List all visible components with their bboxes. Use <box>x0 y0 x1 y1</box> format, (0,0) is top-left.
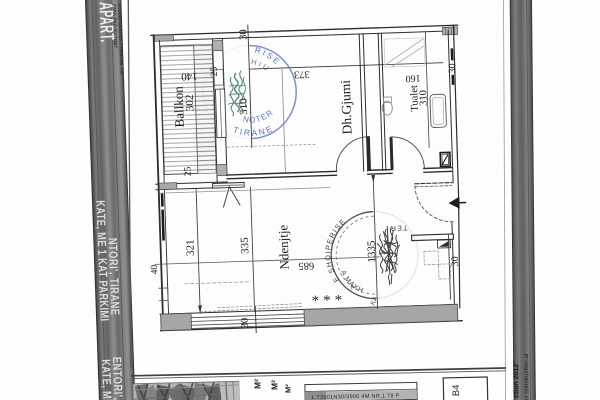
svg-text:30: 30 <box>450 256 461 266</box>
svg-text:***: *** <box>311 293 346 310</box>
svg-text:1.T3901N30/3900 4M NR.1:78 P: 1.T3901N30/3900 4M NR.1:78 P <box>311 393 400 400</box>
svg-text:40: 40 <box>150 264 160 274</box>
svg-text:310: 310 <box>418 90 430 106</box>
svg-text:M²: M² <box>284 384 293 393</box>
svg-text:25: 25 <box>183 166 193 176</box>
svg-text:ov construction.al: ov construction.al <box>523 354 530 400</box>
svg-text:373: 373 <box>294 68 310 80</box>
svg-text:140: 140 <box>180 70 197 83</box>
svg-text:685: 685 <box>298 260 314 272</box>
svg-text:335: 335 <box>239 237 252 254</box>
svg-text:NTORI', TIRANE: NTORI', TIRANE <box>105 238 121 316</box>
svg-text:30: 30 <box>447 63 458 73</box>
svg-text:ENTORI', TIR: ENTORI', TIR <box>110 357 126 400</box>
svg-text:30: 30 <box>238 29 249 40</box>
svg-text:302: 302 <box>184 94 197 111</box>
svg-text:160: 160 <box>405 72 420 83</box>
svg-text:Ndenjtje: Ndenjtje <box>275 224 291 269</box>
svg-text:M²: M² <box>269 380 279 390</box>
svg-text:25: 25 <box>210 66 220 76</box>
svg-text:M²: M² <box>252 379 262 389</box>
svg-text:Dh.Gjumi: Dh.Gjumi <box>338 80 355 135</box>
svg-text:321: 321 <box>184 239 197 256</box>
svg-text:ction 2012'': ction 2012'' <box>513 360 520 398</box>
svg-text:30: 30 <box>240 318 251 329</box>
svg-text:TER: TER <box>390 223 408 231</box>
svg-text:B4: B4 <box>451 384 462 396</box>
